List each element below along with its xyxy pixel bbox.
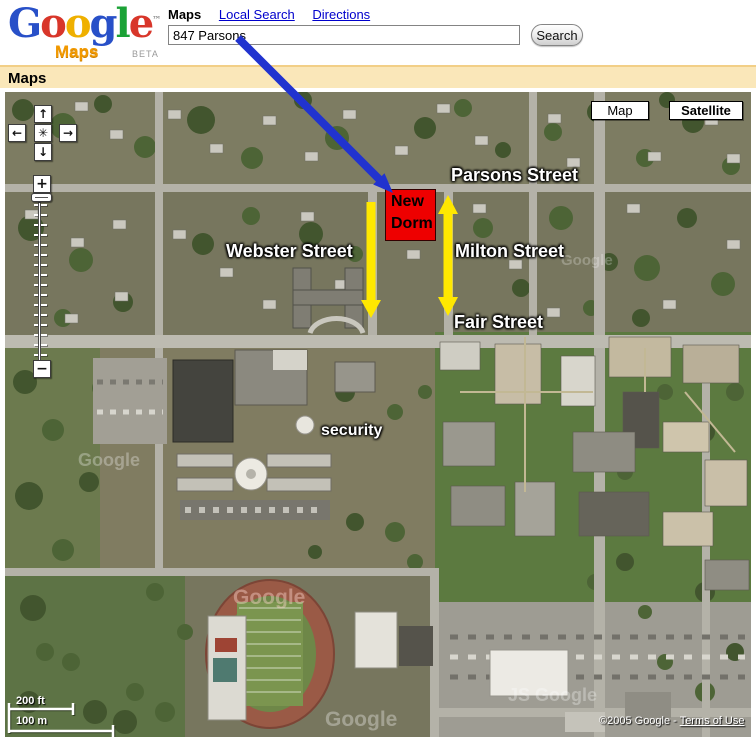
map-view-button[interactable]: Map (591, 101, 649, 120)
pan-center-button[interactable]: ✳ (34, 124, 52, 142)
map-canvas[interactable]: Google Google Google JS Google Google (5, 92, 751, 737)
top-nav: Maps Local Search Directions (168, 7, 384, 22)
map-copyright: ©2005 Google - Terms of Use (599, 715, 744, 727)
zoom-out-button[interactable]: − (33, 360, 51, 378)
maps-title-bar: Maps (0, 65, 756, 88)
plus-icon: + (36, 176, 48, 192)
nav-tab-maps: Maps (168, 7, 201, 22)
google-maps-logo: Google™ Maps BETA (8, 2, 168, 62)
logo-maps-label: Maps (55, 42, 98, 62)
arrow-right-icon: → (63, 126, 73, 140)
minus-icon: − (36, 361, 48, 377)
arrow-up-icon: ↑ (38, 107, 48, 121)
satellite-imagery (5, 92, 751, 737)
satellite-view-button[interactable]: Satellite (669, 101, 743, 120)
pan-up-button[interactable]: ↑ (34, 105, 52, 123)
search-input[interactable] (168, 25, 520, 45)
terms-of-use-link[interactable]: Terms of Use (680, 715, 745, 727)
arrow-down-icon: ↓ (38, 145, 48, 159)
pan-down-button[interactable]: ↓ (34, 143, 52, 161)
pan-right-button[interactable]: → (59, 124, 77, 142)
zoom-in-button[interactable]: + (33, 175, 51, 193)
trademark-symbol: ™ (152, 16, 161, 26)
zoom-slider-handle[interactable] (31, 193, 52, 202)
nav-link-local-search[interactable]: Local Search (219, 7, 295, 22)
arrow-left-icon: ← (12, 126, 22, 140)
new-dorm-marker: New Dorm (385, 189, 436, 241)
logo-beta-label: BETA (132, 49, 159, 59)
nav-link-directions[interactable]: Directions (312, 7, 370, 22)
header: Google™ Maps BETA Maps Local Search Dire… (0, 0, 756, 64)
page-title: Maps (8, 70, 46, 87)
pan-left-button[interactable]: ← (8, 124, 26, 142)
recenter-icon: ✳ (38, 126, 48, 140)
google-maps-page: Google™ Maps BETA Maps Local Search Dire… (0, 0, 756, 737)
google-logo-word: Google™ (8, 2, 161, 46)
search-button[interactable]: Search (531, 24, 583, 46)
zoom-slider-line (38, 202, 41, 362)
